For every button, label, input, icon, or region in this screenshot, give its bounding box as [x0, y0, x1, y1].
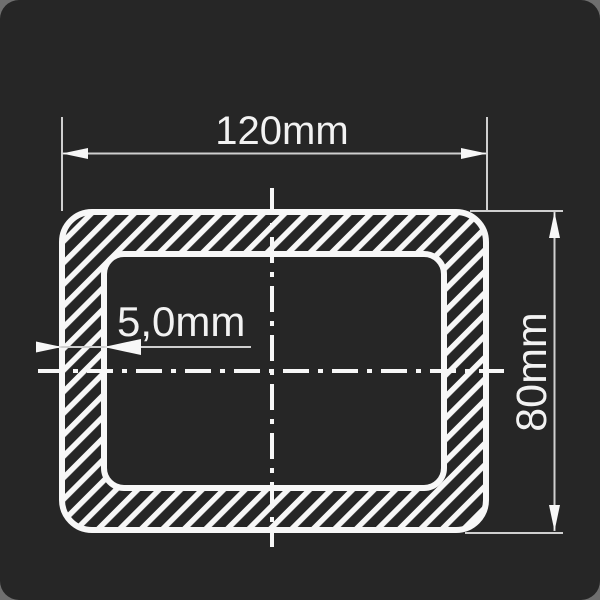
thickness-arrow-outer [36, 342, 62, 353]
height-arrow-top [549, 212, 560, 238]
width-arrow-left [62, 148, 88, 159]
tube-cross-section-drawing: 120mm 80mm 5,0mm [0, 0, 600, 600]
height-dimension-label: 80mm [508, 312, 556, 431]
drawing-panel: 120mm 80mm 5,0mm [0, 0, 600, 600]
width-arrow-right [461, 148, 487, 159]
thickness-dimension-label: 5,0mm [117, 298, 245, 345]
width-dimension: 120mm [62, 109, 487, 211]
height-arrow-bottom [549, 505, 560, 531]
width-dimension-label: 120mm [215, 109, 348, 153]
